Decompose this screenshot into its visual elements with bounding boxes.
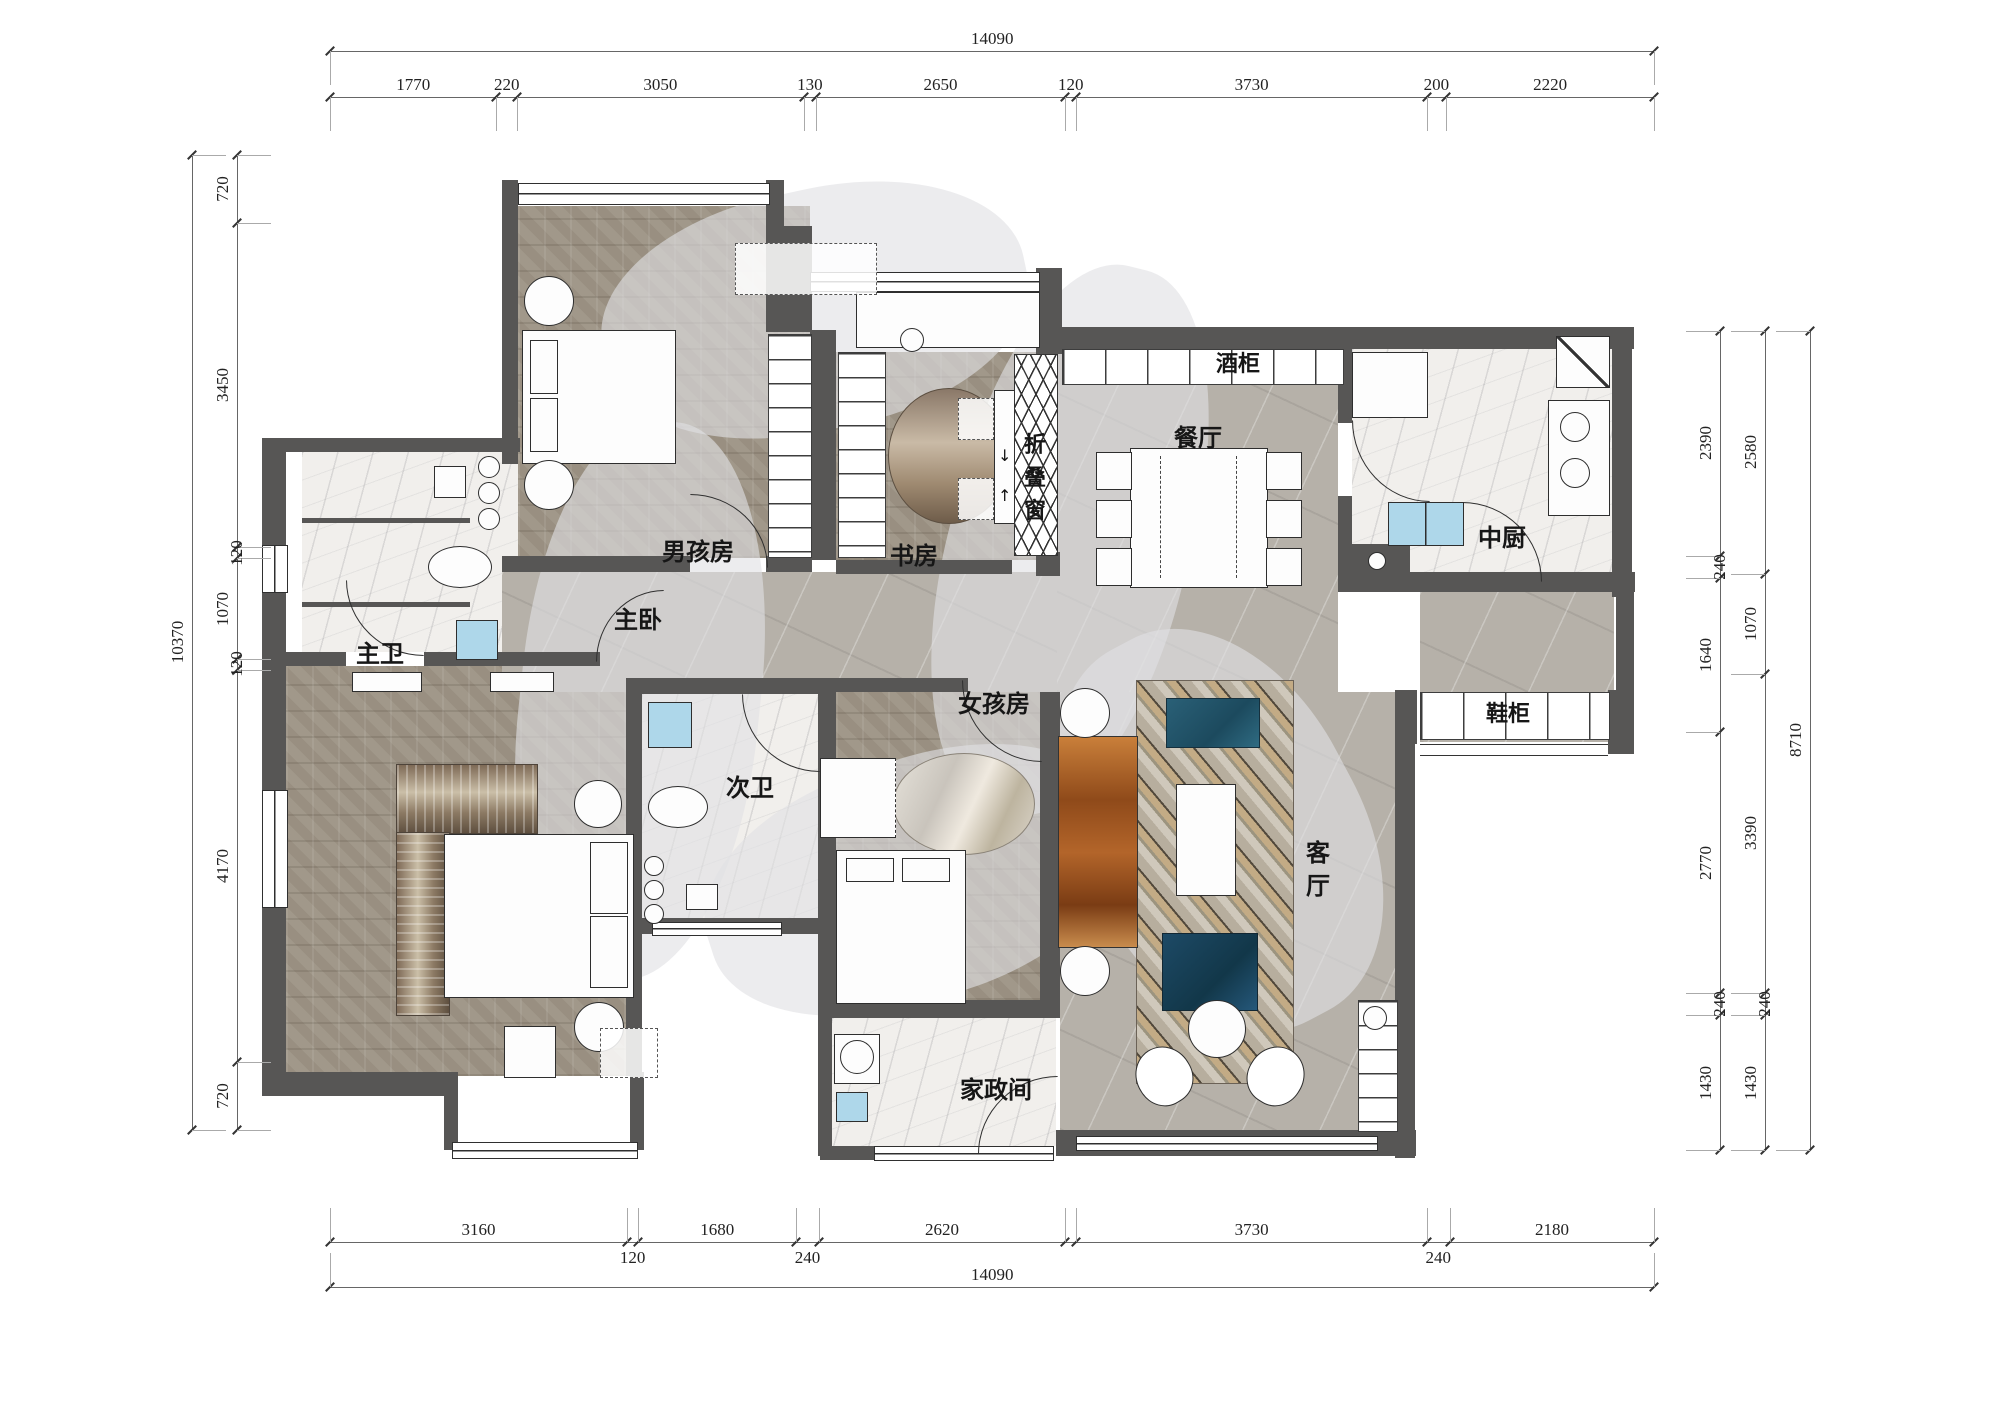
dim-guide: [819, 1208, 820, 1242]
dim-guide: [237, 1130, 271, 1131]
dim-guide: [1446, 97, 1447, 131]
dim-line: [237, 155, 238, 1130]
floor-plan-canvas: 男孩房 书房 折叠窗 餐厅 酒柜 中厨 鞋柜 客厅 女孩房 家政间 次卫 主卫 …: [0, 0, 2000, 1414]
dim-label: 240: [795, 1248, 821, 1268]
dim-label: 130: [797, 75, 823, 95]
dim-line: [330, 97, 1654, 98]
dim-label: 1070: [1741, 607, 1761, 641]
dim-label: 4170: [213, 849, 233, 883]
dim-line: [1810, 331, 1811, 1150]
dim-label: 240: [1426, 1248, 1452, 1268]
dim-guide: [1427, 97, 1428, 131]
dim-label: 240: [1755, 991, 1775, 1017]
dim-line: [1765, 331, 1766, 1150]
dim-label: 3730: [1235, 1220, 1269, 1240]
dim-guide: [1076, 97, 1077, 131]
dim-label: 8710: [1786, 723, 1806, 757]
dim-guide: [1076, 1208, 1077, 1242]
dimension-layer: 1409017702203050130265012037302002220316…: [0, 0, 2000, 1414]
dim-line: [330, 1242, 1654, 1243]
dim-line: [330, 51, 1654, 52]
dim-guide: [237, 1062, 271, 1063]
dim-label: 240: [1710, 554, 1730, 580]
dim-guide: [1686, 1150, 1720, 1151]
dim-guide: [496, 97, 497, 131]
dim-label: 1070: [213, 592, 233, 626]
dim-guide: [804, 97, 805, 131]
dim-label: 3160: [462, 1220, 496, 1240]
dim-label: 120: [227, 540, 247, 566]
dim-guide: [1686, 331, 1720, 332]
dim-guide: [330, 51, 331, 85]
dim-label: 120: [1058, 75, 1084, 95]
dim-guide: [796, 1208, 797, 1242]
dim-label: 2650: [924, 75, 958, 95]
dim-label: 3450: [213, 368, 233, 402]
dim-guide: [192, 1130, 226, 1131]
dim-label: 1430: [1741, 1066, 1761, 1100]
dim-label: 1640: [1696, 638, 1716, 672]
dim-label: 720: [213, 1083, 233, 1109]
dim-guide: [1065, 1208, 1066, 1242]
dim-label: 3390: [1741, 816, 1761, 850]
dim-guide: [1065, 97, 1066, 131]
dim-guide: [1731, 574, 1765, 575]
dim-guide: [1731, 674, 1765, 675]
dim-label: 3730: [1235, 75, 1269, 95]
dim-label: 1680: [700, 1220, 734, 1240]
dim-guide: [237, 223, 271, 224]
dim-label: 2390: [1696, 426, 1716, 460]
dim-guide: [330, 1253, 331, 1287]
dim-guide: [330, 97, 331, 131]
dim-label: 1770: [396, 75, 430, 95]
dim-label: 220: [494, 75, 520, 95]
dim-guide: [638, 1208, 639, 1242]
dim-label: 720: [213, 176, 233, 202]
dim-guide: [1686, 732, 1720, 733]
dim-label: 14090: [971, 29, 1014, 49]
dim-guide: [517, 97, 518, 131]
dim-label: 3050: [643, 75, 677, 95]
dim-label: 2620: [925, 1220, 959, 1240]
dim-guide: [237, 155, 271, 156]
dim-guide: [192, 155, 226, 156]
dim-guide: [1450, 1208, 1451, 1242]
dim-label: 120: [227, 652, 247, 678]
dim-label: 240: [1710, 991, 1730, 1017]
dim-guide: [627, 1208, 628, 1242]
dim-label: 200: [1424, 75, 1450, 95]
dim-line: [1720, 331, 1721, 1150]
dim-label: 2580: [1741, 435, 1761, 469]
dim-line: [330, 1287, 1654, 1288]
dim-label: 14090: [971, 1265, 1014, 1285]
dim-guide: [1776, 1150, 1810, 1151]
dim-guide: [330, 1208, 331, 1242]
dim-guide: [1654, 1253, 1655, 1287]
dim-guide: [1776, 331, 1810, 332]
dim-guide: [1427, 1208, 1428, 1242]
dim-label: 2220: [1533, 75, 1567, 95]
dim-guide: [816, 97, 817, 131]
dim-guide: [1731, 1150, 1765, 1151]
dim-guide: [1654, 97, 1655, 131]
dim-guide: [1731, 331, 1765, 332]
dim-guide: [1654, 1208, 1655, 1242]
dim-label: 1430: [1696, 1066, 1716, 1100]
dim-label: 2770: [1696, 846, 1716, 880]
dim-label: 2180: [1535, 1220, 1569, 1240]
dim-label: 120: [620, 1248, 646, 1268]
dim-line: [192, 155, 193, 1130]
dim-label: 10370: [168, 621, 188, 664]
dim-guide: [1654, 51, 1655, 85]
